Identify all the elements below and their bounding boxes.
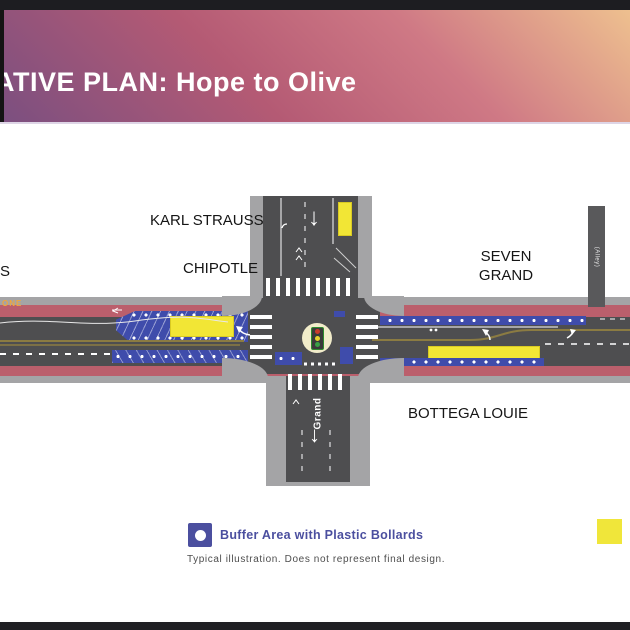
business-label-left-partial: S — [0, 263, 10, 280]
header-left-edge — [0, 10, 4, 122]
buffer-swatch-icon — [188, 523, 212, 547]
signal-green-lamp — [315, 342, 320, 347]
buffer-area-northeast — [372, 316, 586, 325]
crosswalk-south — [288, 374, 348, 390]
loading-zone-north — [338, 202, 352, 236]
bike-box-southwest — [275, 352, 302, 365]
business-label-seven-grand: SEVEN GRAND — [468, 248, 544, 286]
crosswalk-north — [266, 278, 354, 296]
top-letterbox-bar — [0, 0, 630, 10]
bike-box-northeast — [334, 311, 345, 317]
business-label-karl-strauss: KARL STRAUSS — [150, 212, 264, 229]
traffic-signal-housing — [311, 327, 324, 350]
slide: ATIVE PLAN: Hope to Olive (Alley) — [0, 0, 630, 630]
legend-buffer-label: Buffer Area with Plastic Bollards — [220, 528, 423, 542]
down-arrow-icon: ↓ — [308, 206, 320, 230]
alley: (Alley) — [588, 206, 605, 307]
grand-street-label-text: Grand — [313, 397, 324, 429]
grand-street-label: Grand — [306, 396, 330, 430]
bollard-dot-icon — [195, 530, 206, 541]
crosswalk-east — [356, 313, 378, 359]
page-title: ATIVE PLAN: Hope to Olive — [0, 67, 357, 98]
crosswalk-west — [250, 313, 272, 359]
disclaimer-text: Typical illustration. Does not represent… — [187, 554, 445, 565]
business-label-bottega-louie: BOTTEGA LOUIE — [408, 405, 528, 422]
business-label-chipotle: CHIPOTLE — [183, 260, 258, 277]
signal-red-lamp — [315, 329, 320, 334]
alley-label: (Alley) — [594, 246, 600, 267]
signal-yellow-lamp — [315, 336, 320, 341]
loading-zone-swatch-icon — [597, 519, 622, 544]
traffic-signal-icon — [302, 323, 332, 353]
loading-zone-west — [170, 316, 234, 337]
bike-box-southeast — [340, 347, 353, 364]
bottom-letterbox-bar — [0, 622, 630, 630]
curb-zone-label: ONE — [2, 299, 22, 308]
slide-header: ATIVE PLAN: Hope to Olive — [0, 10, 630, 124]
